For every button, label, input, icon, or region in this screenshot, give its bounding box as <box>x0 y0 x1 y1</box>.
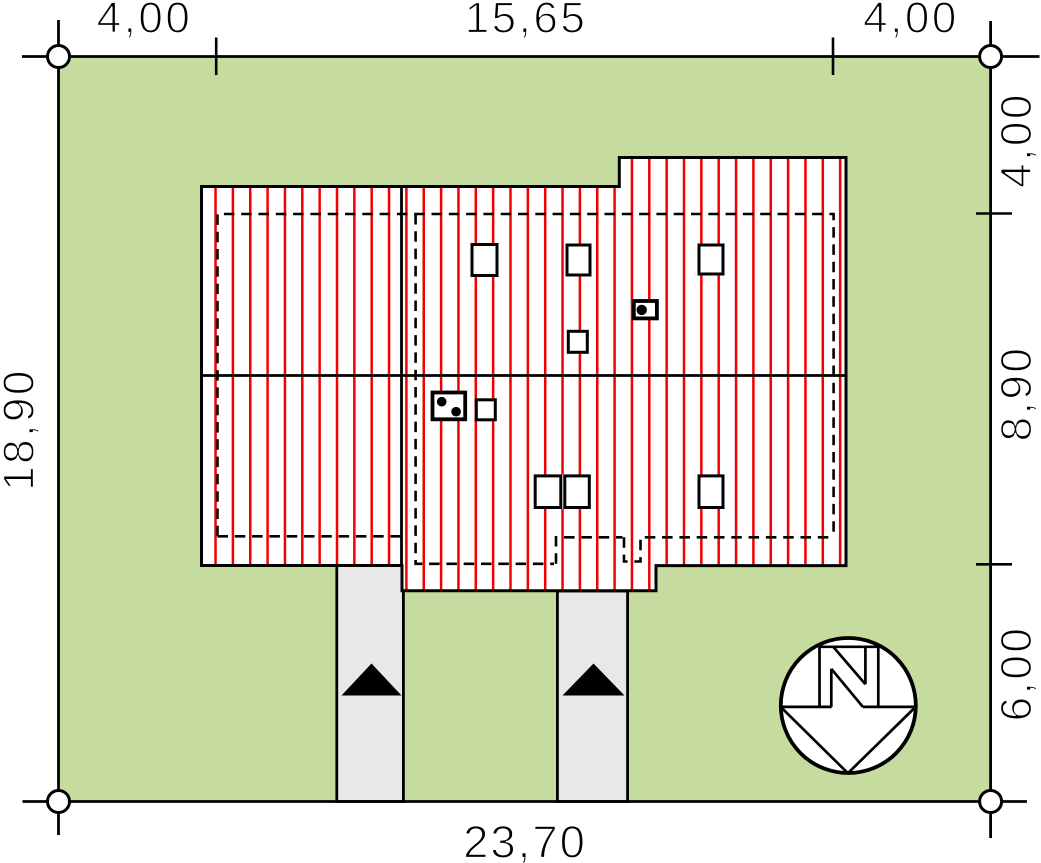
svg-text:15,65: 15,65 <box>465 0 588 43</box>
svg-text:6,00: 6,00 <box>992 626 1041 722</box>
svg-text:18,90: 18,90 <box>0 368 44 491</box>
svg-text:4,00: 4,00 <box>97 0 193 43</box>
svg-text:4,00: 4,00 <box>863 0 959 43</box>
svg-text:8,90: 8,90 <box>992 346 1041 442</box>
svg-text:23,70: 23,70 <box>463 817 587 863</box>
svg-text:4,00: 4,00 <box>992 92 1041 188</box>
